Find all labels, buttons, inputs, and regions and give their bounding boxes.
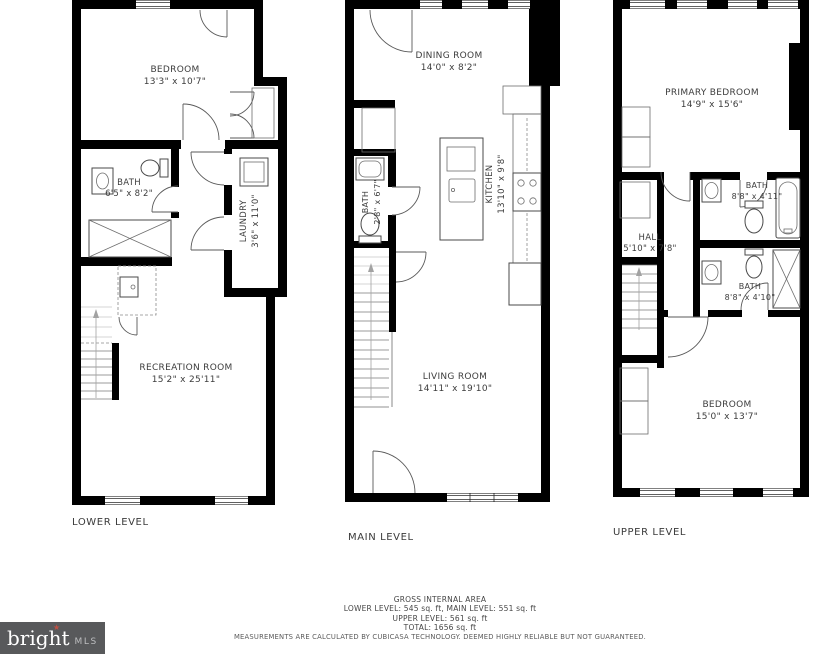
stairs-icon (354, 257, 392, 407)
doors (370, 10, 426, 493)
window (508, 1, 530, 9)
toilet-icon (745, 201, 763, 233)
door-arc (152, 186, 178, 212)
door-arc (668, 317, 708, 357)
door-arc (183, 104, 219, 140)
lower-level-label: LOWER LEVEL (72, 517, 149, 528)
window (700, 489, 733, 497)
stairs-icon (622, 265, 657, 330)
room-dims-dining: 14'0" x 8'2" (421, 63, 478, 73)
shower-icon (89, 220, 171, 257)
doors (119, 10, 254, 335)
floor-plan-lower: BEDROOM 13'3" x 10'7" BATH 6'5" x 8'2" L… (60, 0, 305, 510)
fixtures (81, 88, 274, 399)
door-arc (373, 451, 415, 493)
room-label-bath: BATH (361, 191, 370, 213)
room-dims-bedroom: 15'0" x 13'7" (696, 412, 759, 422)
window (420, 1, 442, 9)
window (763, 489, 793, 497)
area-summary: GROSS INTERNAL AREA LOWER LEVEL: 545 sq.… (62, 595, 818, 642)
sink-icon (702, 179, 721, 202)
stairs-icon (81, 307, 112, 399)
window (728, 1, 757, 9)
area-line-lower-main: LOWER LEVEL: 545 sq. ft, MAIN LEVEL: 551… (62, 604, 818, 613)
sink-icon (702, 261, 721, 284)
room-label-bedroom: BEDROOM (702, 400, 751, 410)
door-arc (230, 114, 254, 138)
main-level-label: MAIN LEVEL (348, 532, 414, 543)
room-label-recreation: RECREATION ROOM (139, 363, 232, 373)
room-label-bath2: BATH (739, 282, 761, 291)
closet-shelf-icon (622, 107, 650, 167)
closet-shelf-icon (620, 182, 650, 218)
stove-icon (513, 173, 541, 211)
room-dims-bedroom: 13'3" x 10'7" (144, 77, 207, 87)
window (768, 1, 798, 9)
bathtub-icon (776, 178, 800, 238)
room-label-hall: HALL (639, 233, 662, 243)
sink-icon (356, 158, 384, 180)
floor-plan-upper: PRIMARY BEDROOM 14'9" x 15'6" BATH 8'8" … (605, 0, 818, 510)
room-label-kitchen: KITCHEN (485, 165, 495, 204)
floor-plan-sheet: BEDROOM 13'3" x 10'7" BATH 6'5" x 8'2" L… (0, 0, 818, 654)
room-dims-bath1: 8'8" x 4'11" (732, 192, 783, 201)
walls (345, 0, 560, 502)
disclaimer-text: MEASUREMENTS ARE CALCULATED BY CUBICASA … (62, 633, 818, 642)
window (447, 494, 518, 502)
door-arc (370, 10, 412, 52)
toilet-icon (745, 249, 763, 278)
door-arc (396, 252, 426, 282)
room-dims-primary-bedroom: 14'9" x 15'6" (681, 100, 744, 110)
area-line-total: TOTAL: 1656 sq. ft (62, 623, 818, 632)
room-dims-hall: 5'10" x 7'8" (623, 244, 677, 254)
kitchen-island-icon (440, 138, 483, 240)
logo-star-icon: ★ (53, 624, 60, 632)
area-line-upper: UPPER LEVEL: 561 sq. ft (62, 614, 818, 623)
room-dims-laundry: 3'6" x 11'0" (251, 194, 261, 248)
wet-bar-icon (118, 266, 156, 315)
floor-plan-main: DINING ROOM 14'0" x 8'2" BATH 2'8" x 6'7… (340, 0, 570, 510)
room-label-bedroom: BEDROOM (150, 65, 199, 75)
room-label-living: LIVING ROOM (423, 372, 488, 382)
window (136, 1, 170, 9)
door-arc (200, 10, 227, 37)
door-arc (230, 92, 254, 116)
door-arc (191, 152, 224, 185)
closet-shelf-icon (620, 368, 648, 434)
brightmls-logo: bright ★ MLS (0, 622, 105, 654)
fixtures (620, 107, 800, 434)
room-label-bath1: BATH (746, 181, 768, 190)
windows (420, 1, 530, 502)
window (215, 497, 248, 505)
door-arc (661, 172, 690, 201)
window (677, 1, 707, 9)
room-dims-kitchen: 13'10" x 9'8" (497, 154, 507, 213)
door-arc (191, 217, 224, 250)
room-dims-bath: 2'8" x 6'7" (373, 179, 382, 224)
closet-shelf-icon (362, 108, 395, 152)
door-arc (392, 187, 420, 215)
door-arc (119, 317, 137, 335)
fridge-icon (509, 263, 541, 305)
closet-shelf-icon (252, 88, 274, 138)
shower-icon (773, 250, 800, 308)
gross-area-title: GROSS INTERNAL AREA (62, 595, 818, 604)
toilet-icon (141, 159, 168, 177)
washer-icon (240, 158, 268, 186)
window (640, 489, 675, 497)
room-dims-bath: 6'5" x 8'2" (105, 189, 153, 199)
room-label-dining: DINING ROOM (415, 51, 482, 61)
room-dims-recreation: 15'2" x 25'11" (152, 375, 221, 385)
upper-level-label: UPPER LEVEL (613, 527, 686, 538)
window (105, 497, 140, 505)
window (462, 1, 488, 9)
brightmls-logo-suffix: MLS (74, 637, 97, 647)
room-dims-bath2: 8'8" x 4'10" (725, 293, 776, 302)
window (630, 1, 665, 9)
room-label-laundry: LAUNDRY (239, 199, 249, 242)
room-dims-living: 14'11" x 19'10" (418, 384, 493, 394)
room-label-bath: BATH (117, 178, 141, 188)
room-label-primary-bedroom: PRIMARY BEDROOM (665, 88, 759, 98)
